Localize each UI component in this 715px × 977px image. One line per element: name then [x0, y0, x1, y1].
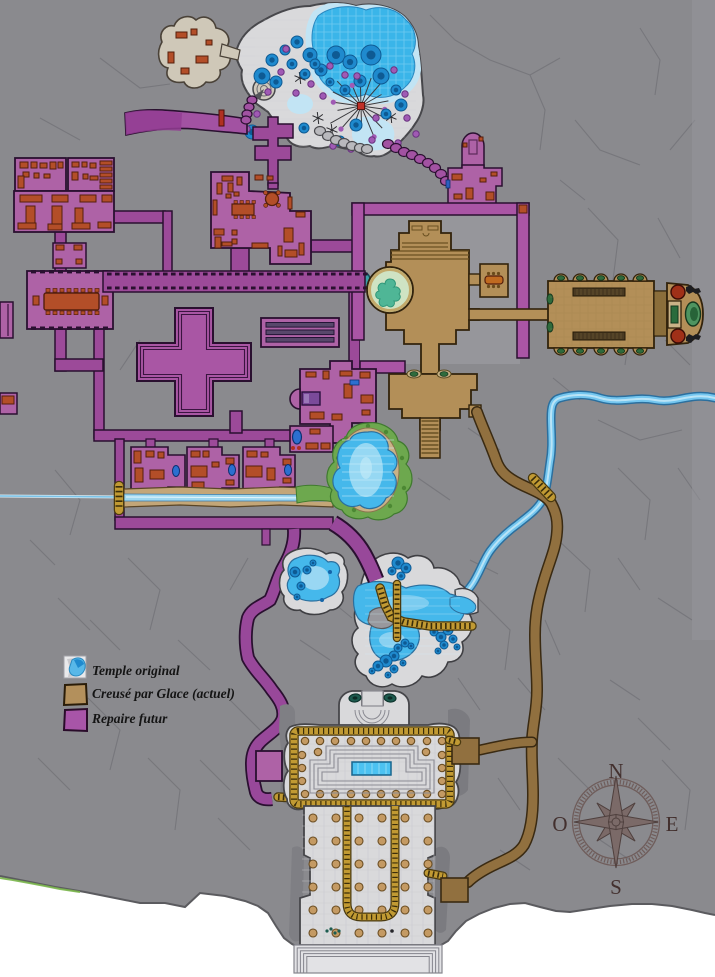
svg-text:O: O [552, 812, 567, 836]
svg-text:Creusé par Glace (actuel): Creusé par Glace (actuel) [92, 686, 235, 701]
svg-text:Temple original: Temple original [92, 663, 180, 678]
svg-text:E: E [666, 812, 679, 836]
svg-text:Repaire futur: Repaire futur [91, 711, 168, 726]
svg-text:S: S [610, 875, 622, 899]
svg-text:N: N [608, 759, 623, 783]
